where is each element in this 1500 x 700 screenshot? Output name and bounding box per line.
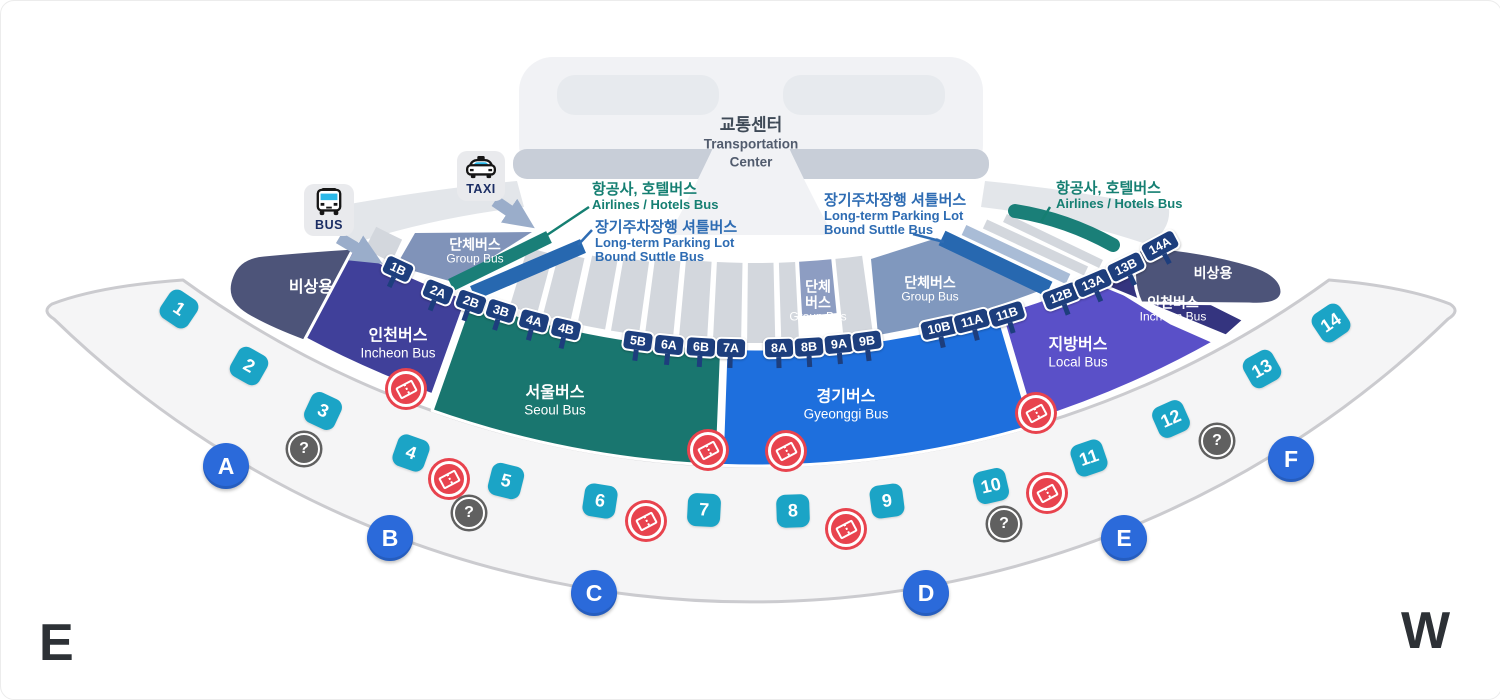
zone-label-group-mid: 단체 버스 Group Bus — [789, 279, 846, 324]
zone-text: Group Bus — [446, 253, 503, 266]
callout-text: Long-term Parking Lot — [595, 236, 737, 250]
zone-text: 인천버스 — [360, 328, 435, 346]
taxi-icon-label: TAXI — [466, 182, 496, 196]
zone-text: Gyeonggi Bus — [804, 407, 889, 422]
ticket-icon[interactable] — [768, 433, 804, 469]
callout-text: Long-term Parking Lot — [824, 209, 966, 223]
ticket-icon[interactable] — [828, 511, 864, 547]
taxi-icon — [465, 156, 497, 180]
callout-text: Airlines / Hotels Bus — [1056, 197, 1182, 211]
callout-longterm-parking-right: 장기주차장행 셔틀버스 Long-term Parking Lot Bound … — [824, 192, 966, 236]
callout-text: 항공사, 호텔버스 — [1056, 180, 1182, 197]
callout-airlines-hotels-right: 항공사, 호텔버스 Airlines / Hotels Bus — [1056, 180, 1182, 211]
stop-tag-5B[interactable]: 5B — [621, 328, 656, 354]
zone-text: 경기버스 — [804, 389, 889, 407]
zone-text: Incheon Bus — [1140, 311, 1207, 324]
ticket-icon[interactable] — [690, 432, 726, 468]
callout-text: Bound Suttle Bus — [824, 223, 966, 237]
bay-strip — [577, 256, 617, 330]
bay-strip — [645, 258, 681, 339]
callout-longterm-parking-left: 장기주차장행 셔틀버스 Long-term Parking Lot Bound … — [595, 219, 737, 263]
ticket-glyph — [635, 511, 658, 531]
east-side-label: E — [39, 613, 74, 673]
stop-tag-6B[interactable]: 6B — [684, 335, 717, 359]
zone-text: Incheon Bus — [360, 346, 435, 361]
zone-label-gyeonggi: 경기버스 Gyeonggi Bus — [804, 389, 889, 422]
zone-text: 비상용 — [289, 279, 333, 297]
door-number-9[interactable]: 9 — [869, 483, 906, 520]
zone-label-seoul: 서울버스 Seoul Bus — [524, 385, 586, 418]
question-icon[interactable]: ? — [1201, 425, 1233, 457]
ticket-glyph — [1036, 483, 1059, 503]
bay-strip — [747, 263, 775, 343]
zone-text: Local Bus — [1048, 355, 1107, 370]
ticket-glyph — [438, 469, 461, 489]
zone-label-incheon-right: 인천버스 Incheon Bus — [1140, 295, 1207, 324]
gate-letter-A[interactable]: A — [203, 443, 249, 489]
ticket-icon[interactable] — [1029, 475, 1065, 511]
bus-icon — [314, 188, 344, 216]
zone-label-local: 지방버스 Local Bus — [1048, 337, 1107, 370]
zone-label-group-right: 단체버스 Group Bus — [901, 275, 958, 304]
gate-letter-B[interactable]: B — [367, 515, 413, 561]
callout-text: 장기주차장행 셔틀버스 — [824, 192, 966, 209]
zone-text: 인천버스 — [1140, 295, 1207, 311]
ticket-glyph — [395, 379, 418, 399]
tc-english-2: Center — [730, 155, 773, 170]
tc-korean: 교통센터 — [720, 116, 783, 135]
taxi-access-icon[interactable]: TAXI — [457, 151, 505, 201]
zone-text: 단체버스 — [446, 237, 503, 253]
map-canvas — [1, 1, 1500, 699]
stop-tag-7A[interactable]: 7A — [715, 337, 748, 360]
stop-tag-8A[interactable]: 8A — [763, 337, 796, 360]
ticket-icon[interactable] — [388, 371, 424, 407]
pointer-parking-left — [578, 230, 592, 245]
question-icon[interactable]: ? — [453, 497, 485, 529]
ticket-glyph — [1025, 403, 1048, 423]
transportation-center-label: 교통센터 Transportation Center — [641, 111, 861, 172]
zone-text: 단체 — [789, 279, 846, 295]
stop-tag-9B[interactable]: 9B — [850, 328, 885, 354]
callout-airlines-hotels-left: 항공사, 호텔버스 Airlines / Hotels Bus — [592, 181, 718, 212]
ticket-icon[interactable] — [628, 503, 664, 539]
zone-text: 버스 — [789, 295, 846, 311]
zone-label-emergency-left: 비상용 — [289, 279, 333, 297]
zone-text: Seoul Bus — [524, 403, 586, 418]
bay-strip — [611, 258, 649, 335]
question-icon[interactable]: ? — [288, 433, 320, 465]
bus-icon-label: BUS — [315, 218, 343, 232]
airport-curbside-map: 교통센터 Transportation Center BUS T — [0, 0, 1500, 700]
ticket-icon[interactable] — [1018, 395, 1054, 431]
tc-english-1: Transportation — [704, 137, 799, 152]
callout-text: Airlines / Hotels Bus — [592, 198, 718, 212]
zone-label-incheon-left: 인천버스 Incheon Bus — [360, 328, 435, 361]
gate-letter-C[interactable]: C — [571, 570, 617, 616]
ticket-glyph — [775, 441, 798, 461]
stop-tag-8B[interactable]: 8B — [792, 335, 825, 359]
zone-text: 비상용 — [1194, 265, 1233, 281]
door-number-6[interactable]: 6 — [581, 482, 619, 520]
door-number-7[interactable]: 7 — [687, 493, 722, 528]
pointer-airlines-left — [547, 207, 589, 235]
callout-text: 장기주차장행 셔틀버스 — [595, 219, 737, 236]
gate-letter-F[interactable]: F — [1268, 436, 1314, 482]
callout-text: 항공사, 호텔버스 — [592, 181, 718, 198]
ticket-glyph — [697, 440, 720, 460]
bus-access-icon[interactable]: BUS — [304, 184, 354, 236]
west-side-label: W — [1401, 601, 1450, 661]
stop-tag-6A[interactable]: 6A — [652, 332, 686, 357]
ticket-icon[interactable] — [431, 461, 467, 497]
zone-text: Group Bus — [789, 311, 846, 324]
zone-text: 지방버스 — [1048, 337, 1107, 355]
bay-strip — [679, 260, 712, 342]
gate-letter-E[interactable]: E — [1101, 515, 1147, 561]
zone-text: 서울버스 — [524, 385, 586, 403]
gate-letter-D[interactable]: D — [903, 570, 949, 616]
bay-strip — [713, 262, 743, 343]
ticket-glyph — [835, 519, 858, 539]
zone-label-emergency-right: 비상용 — [1194, 265, 1233, 281]
question-icon[interactable]: ? — [988, 508, 1020, 540]
zone-label-group-left: 단체버스 Group Bus — [446, 237, 503, 266]
zone-text: Group Bus — [901, 291, 958, 304]
door-number-8[interactable]: 8 — [776, 494, 810, 528]
zone-text: 단체버스 — [901, 275, 958, 291]
callout-text: Bound Suttle Bus — [595, 250, 737, 264]
